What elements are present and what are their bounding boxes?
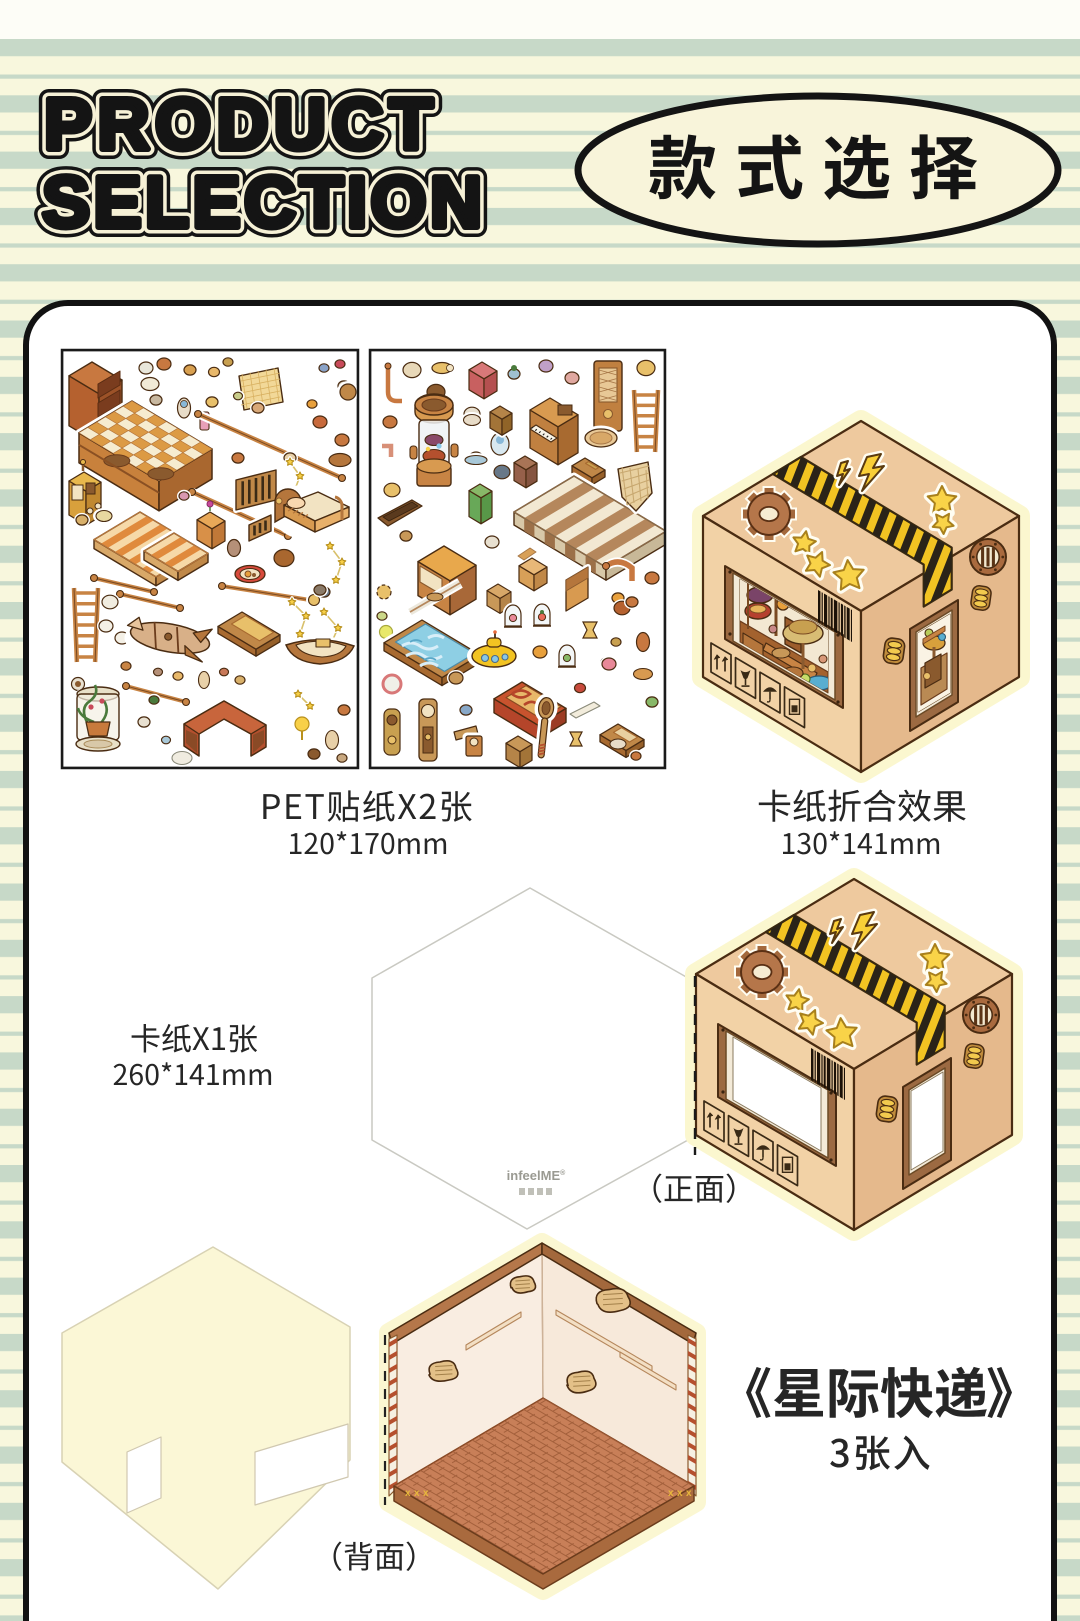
svg-text:PRODUCT: PRODUCT [44,85,439,165]
svg-text:x: x [414,1488,420,1499]
svg-text:x: x [677,1488,683,1499]
svg-text:x: x [423,1488,429,1499]
svg-text:x: x [405,1488,411,1499]
svg-text:SELECTION: SELECTION [42,163,486,243]
svg-text:x: x [686,1488,692,1499]
svg-text:infeelME®: infeelME® [507,1168,566,1183]
svg-text:x: x [668,1488,674,1499]
